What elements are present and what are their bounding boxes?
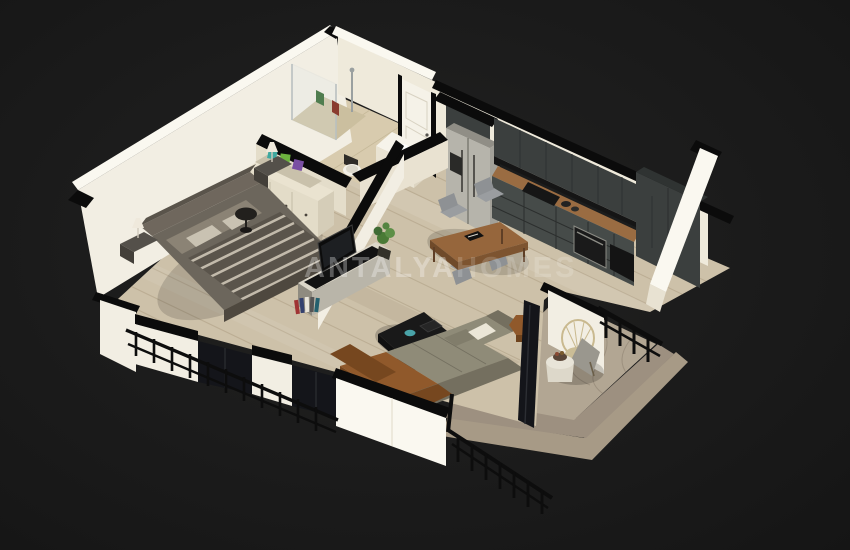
facade-corner-face xyxy=(100,300,136,372)
watermark-suffix: HOMES xyxy=(456,252,577,284)
watermark-brand: ANTALYA xyxy=(304,252,456,284)
teal-dish xyxy=(405,330,416,336)
watermark: ANTALYAHOMES xyxy=(304,252,577,285)
door-knob xyxy=(425,133,428,136)
render-canvas: ANTALYAHOMES xyxy=(0,0,850,550)
